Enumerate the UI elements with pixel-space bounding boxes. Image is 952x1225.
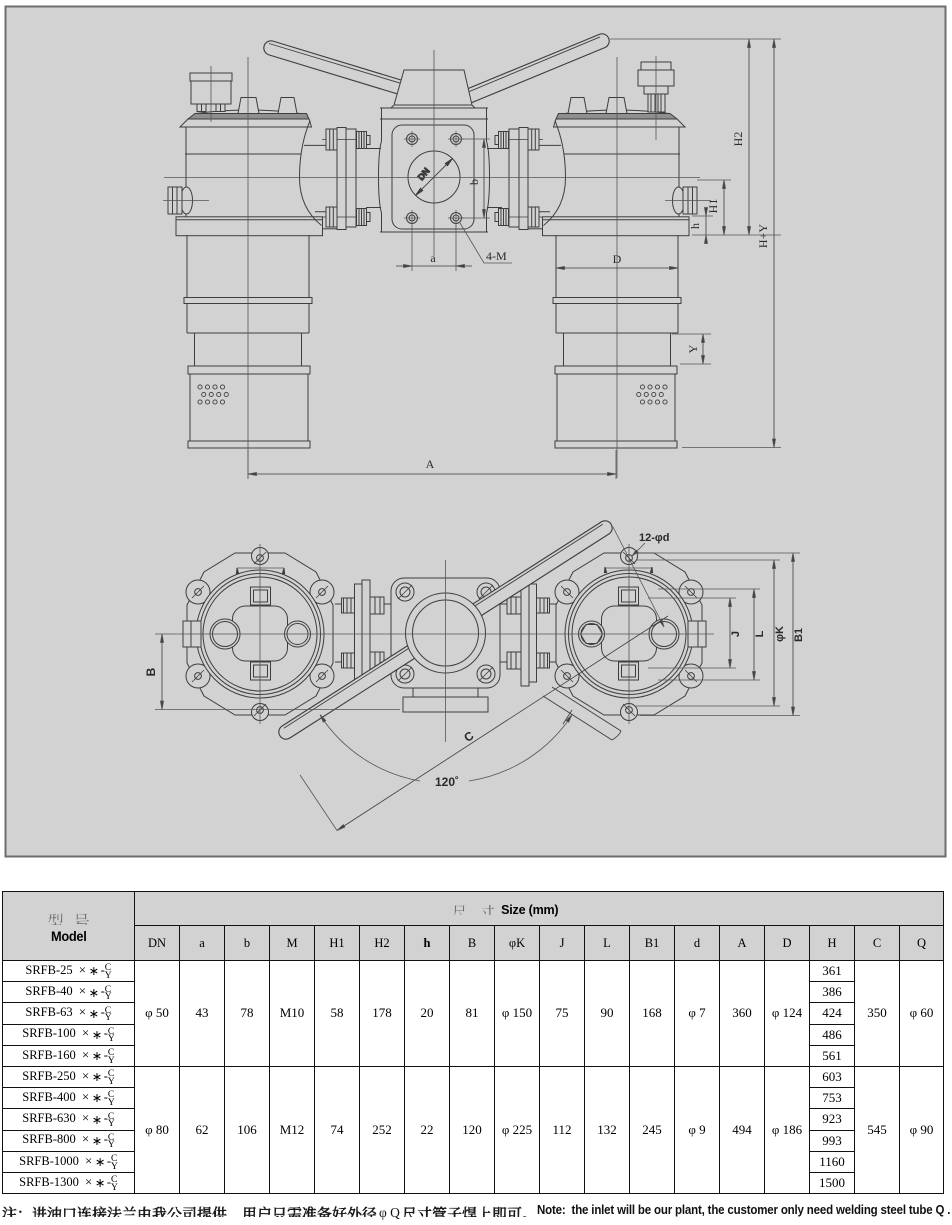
svg-text:a: a xyxy=(430,251,436,265)
svg-text:B1: B1 xyxy=(793,628,805,642)
svg-text:4-M: 4-M xyxy=(486,249,507,263)
svg-text:H+Y: H+Y xyxy=(756,224,770,248)
svg-text:φK: φK xyxy=(774,626,786,642)
svg-text:H2: H2 xyxy=(731,132,745,147)
svg-text:A: A xyxy=(426,457,435,471)
svg-text:D: D xyxy=(613,252,622,266)
svg-text:b: b xyxy=(467,179,481,185)
svg-text:120˚: 120˚ xyxy=(435,775,459,789)
svg-text:B: B xyxy=(144,667,158,676)
svg-text:12-φd: 12-φd xyxy=(639,532,670,544)
svg-text:h: h xyxy=(688,223,702,229)
svg-text:J: J xyxy=(730,631,742,637)
svg-text:H1: H1 xyxy=(706,199,720,214)
svg-text:L: L xyxy=(754,630,766,637)
svg-text:Y: Y xyxy=(686,344,700,353)
